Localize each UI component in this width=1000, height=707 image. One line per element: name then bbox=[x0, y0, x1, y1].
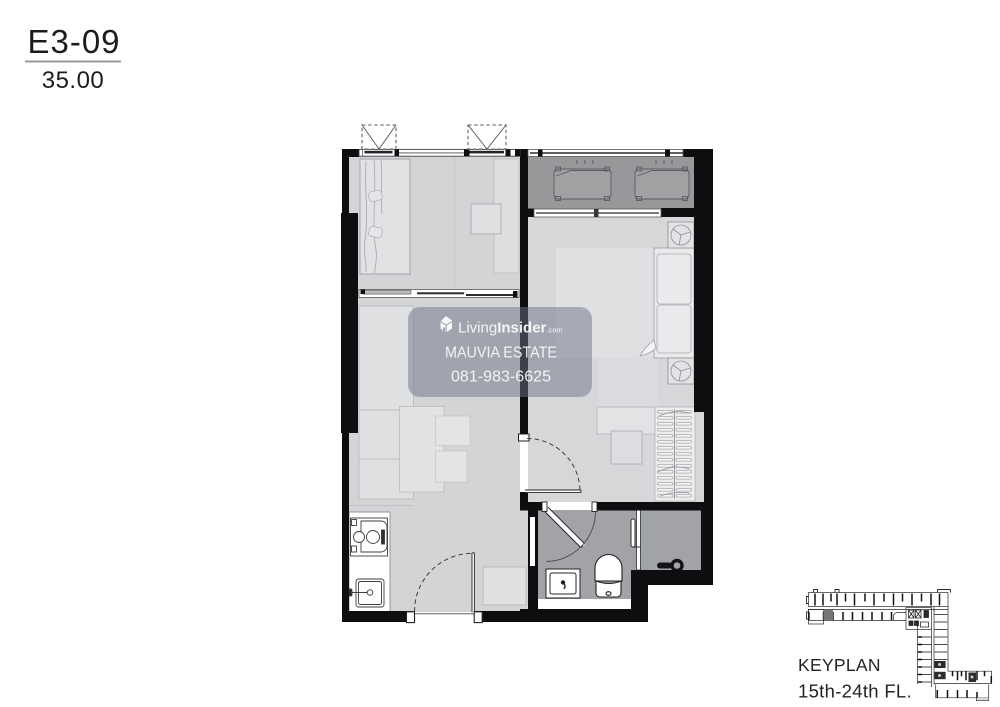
svg-text:E3-09: E3-09 bbox=[27, 23, 120, 60]
svg-text:35.00: 35.00 bbox=[42, 67, 105, 94]
svg-text:MAUVIA ESTATE: MAUVIA ESTATE bbox=[445, 345, 557, 362]
svg-text:KEYPLAN: KEYPLAN bbox=[798, 655, 881, 675]
svg-text:081-983-6625: 081-983-6625 bbox=[451, 369, 551, 386]
svg-text:15th-24th FL.: 15th-24th FL. bbox=[798, 681, 912, 702]
